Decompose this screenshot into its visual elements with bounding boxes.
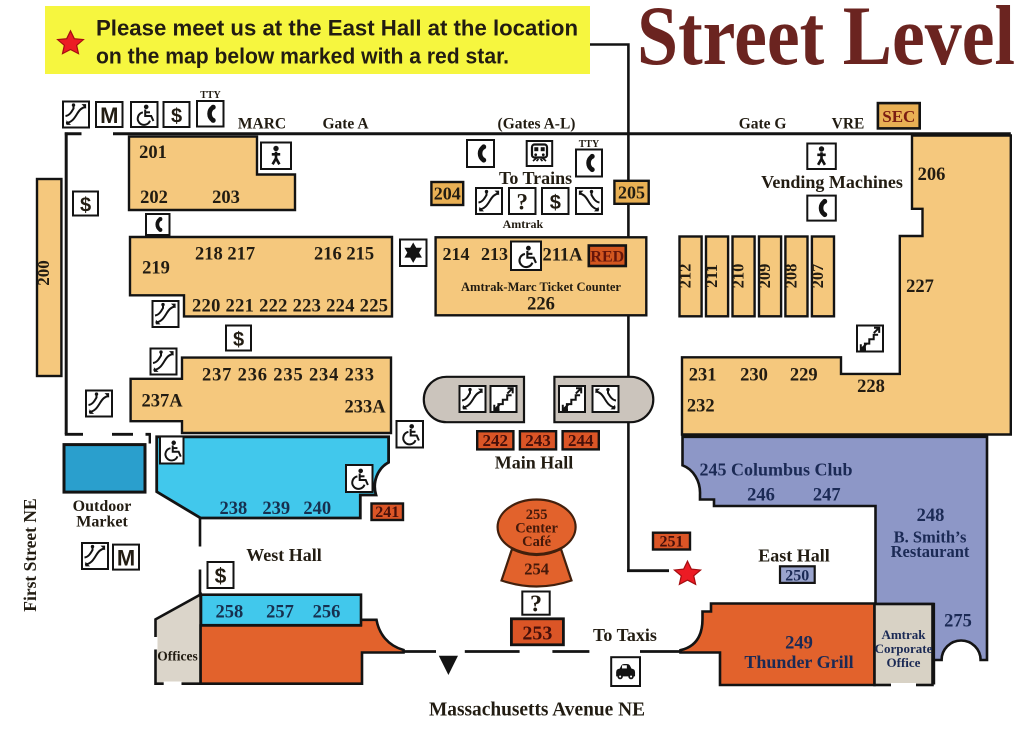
svg-text:205: 205 [618, 182, 645, 202]
svg-text:258: 258 [216, 603, 244, 623]
svg-text:Main Hall: Main Hall [495, 453, 574, 473]
svg-text:?: ? [530, 592, 542, 618]
svg-text:246: 246 [747, 486, 775, 506]
svg-text:$: $ [233, 329, 244, 351]
svg-text:203: 203 [212, 188, 240, 208]
svg-text:240: 240 [303, 499, 331, 519]
svg-text:237 236 235 234 233: 237 236 235 234 233 [202, 366, 374, 386]
svg-text:M: M [117, 546, 135, 571]
svg-text:$: $ [215, 565, 227, 588]
svg-text:(Gates A-L): (Gates A-L) [498, 116, 576, 133]
svg-text:202: 202 [140, 188, 168, 208]
svg-text:250: 250 [785, 567, 809, 584]
svg-text:219: 219 [142, 259, 170, 279]
svg-text:256: 256 [313, 603, 341, 623]
svg-text:Market: Market [76, 514, 128, 531]
svg-text:TTY: TTY [200, 90, 221, 101]
svg-text:To Taxis: To Taxis [593, 625, 657, 645]
svg-text:MARC: MARC [238, 116, 286, 133]
svg-text:211: 211 [702, 264, 721, 288]
svg-text:201: 201 [139, 143, 167, 163]
svg-text:254: 254 [524, 560, 549, 579]
svg-text:200: 200 [34, 260, 53, 286]
svg-text:SEC: SEC [882, 107, 915, 126]
svg-text:Please meet us at the East Hal: Please meet us at the East Hall at the l… [96, 16, 578, 41]
svg-text:242: 242 [483, 431, 509, 450]
svg-text:Office: Office [887, 655, 921, 670]
svg-text:$: $ [171, 106, 182, 128]
svg-text:TTY: TTY [579, 139, 600, 150]
svg-text:206: 206 [918, 165, 946, 185]
svg-text:$: $ [80, 195, 91, 217]
svg-text:Gate G: Gate G [739, 116, 787, 133]
svg-text:248: 248 [917, 506, 945, 526]
svg-text:$: $ [550, 192, 561, 214]
svg-text:214: 214 [443, 244, 470, 264]
svg-text:?: ? [517, 190, 529, 215]
svg-text:247: 247 [813, 486, 841, 506]
svg-text:213: 213 [481, 244, 508, 264]
svg-text:RED: RED [590, 249, 624, 266]
svg-text:Thunder Grill: Thunder Grill [744, 652, 853, 672]
svg-text:Outdoor: Outdoor [73, 498, 132, 515]
svg-text:M: M [100, 103, 118, 128]
svg-text:226: 226 [527, 295, 555, 315]
svg-text:233A: 233A [344, 398, 386, 418]
svg-text:210: 210 [729, 264, 748, 289]
svg-text:238: 238 [220, 499, 248, 519]
svg-text:257: 257 [266, 603, 294, 623]
svg-text:249: 249 [785, 634, 813, 654]
svg-text:VRE: VRE [832, 116, 865, 133]
svg-text:241: 241 [375, 504, 399, 521]
svg-text:Massachusetts Avenue NE: Massachusetts Avenue NE [429, 699, 645, 721]
svg-text:To Trains: To Trains [499, 168, 572, 188]
svg-text:239: 239 [262, 499, 290, 519]
svg-text:228: 228 [857, 377, 885, 397]
svg-text:208: 208 [781, 264, 800, 289]
svg-text:220 221 222 223 224 225: 220 221 222 223 224 225 [192, 297, 388, 317]
svg-text:Café: Café [522, 534, 552, 550]
svg-text:Gate A: Gate A [322, 116, 369, 133]
svg-text:216 215: 216 215 [314, 245, 374, 265]
svg-text:Offices: Offices [157, 649, 197, 664]
svg-text:231: 231 [689, 366, 717, 386]
svg-text:209: 209 [755, 264, 774, 289]
svg-text:218 217: 218 217 [195, 245, 255, 265]
svg-text:Street Level: Street Level [637, 0, 1015, 83]
svg-text:on the map below marked with a: on the map below marked with a red star. [96, 44, 509, 69]
svg-text:244: 244 [568, 431, 594, 450]
svg-text:229: 229 [790, 366, 818, 386]
svg-text:245 Columbus Club: 245 Columbus Club [699, 460, 852, 480]
svg-text:237A: 237A [141, 392, 183, 412]
svg-text:West Hall: West Hall [246, 545, 322, 565]
svg-text:Amtrak: Amtrak [881, 627, 926, 642]
svg-text:Corporate: Corporate [875, 641, 933, 656]
svg-text:251: 251 [660, 534, 684, 551]
svg-text:First Street NE: First Street NE [20, 498, 40, 611]
svg-text:East Hall: East Hall [758, 546, 830, 566]
svg-text:232: 232 [687, 397, 715, 417]
svg-text:212: 212 [676, 264, 695, 289]
svg-text:Amtrak: Amtrak [503, 217, 544, 231]
svg-text:207: 207 [808, 264, 827, 289]
svg-text:Amtrak-Marc Ticket Counter: Amtrak-Marc Ticket Counter [461, 279, 621, 294]
svg-text:230: 230 [740, 366, 768, 386]
svg-text:Vending Machines: Vending Machines [761, 172, 903, 192]
svg-text:211A: 211A [542, 246, 583, 266]
svg-text:227: 227 [906, 277, 934, 297]
svg-text:Restaurant: Restaurant [891, 542, 970, 561]
svg-text:275: 275 [944, 612, 972, 632]
svg-text:253: 253 [522, 623, 552, 645]
svg-text:243: 243 [525, 431, 551, 450]
svg-text:204: 204 [434, 184, 461, 204]
